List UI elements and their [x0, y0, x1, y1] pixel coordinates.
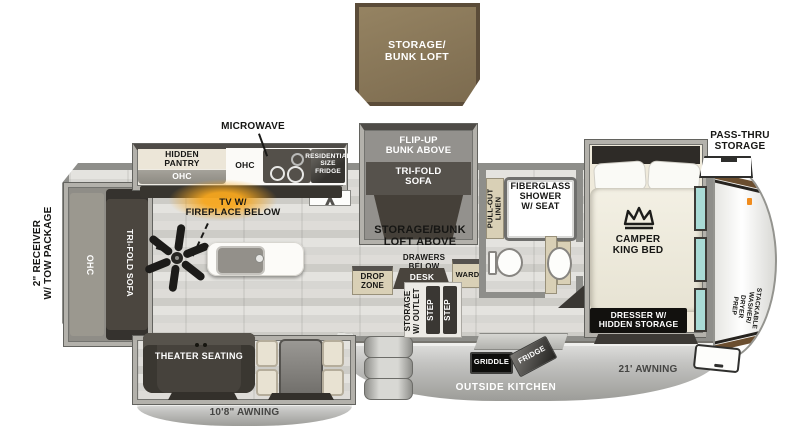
hidden-pantry-label: HIDDEN PANTRY [138, 150, 226, 169]
dinette-chair [322, 369, 344, 396]
kitchen-island [207, 242, 304, 276]
bath-wall-bottom [479, 292, 545, 298]
floorplan-canvas: STORAGE/ BUNK LOFT 2" RECEIVER W/ TOW PA… [0, 0, 800, 443]
step-1-label: STEP [427, 290, 439, 330]
storage-outlet-label: STORAGE W/ OUTLET [404, 282, 422, 340]
theater-seating-label: THEATER SEATING [143, 352, 255, 362]
cupholder-icon [195, 343, 199, 347]
pass-thru-hatch [699, 156, 753, 178]
wardrobe-door-window [694, 237, 707, 282]
wardrobe-door-window [694, 186, 707, 231]
pull-out-linen-label: PULL-OUT LINEN [487, 178, 504, 240]
tv-fireplace-label: TV W/ FIREPLACE BELOW [158, 198, 308, 219]
residential-fridge-label: RESIDENTIAL SIZE FRIDGE [305, 153, 351, 175]
bath-wall-right [576, 166, 583, 242]
dinette-chair [256, 340, 278, 367]
dresser-label: DRESSER W/ HIDDEN STORAGE [590, 311, 687, 330]
ceiling-fan-icon [139, 220, 215, 296]
cap-marker-light [747, 198, 752, 205]
cupholder-icon [203, 343, 207, 347]
bath-sink [547, 247, 572, 280]
step-2-label: STEP [444, 290, 456, 330]
burner-icon [287, 166, 304, 183]
theater-mat [168, 392, 238, 400]
bath-wall-left [479, 166, 486, 298]
hatch-handle [721, 158, 737, 162]
tri-fold-sofa-left-label: TRI-FOLD SOFA [120, 198, 134, 328]
desk-label: DESK [393, 273, 451, 282]
faucet-icon [255, 254, 264, 263]
awning-10-label: 10'8" AWNING [172, 407, 317, 418]
cooktop [263, 149, 311, 183]
front-cap [713, 160, 777, 362]
dinette-chair [256, 369, 278, 396]
outside-kitchen-label: OUTSIDE KITCHEN [426, 382, 586, 393]
entry-steps [364, 336, 411, 402]
washer-dryer-label: STACKABLE WASHER/ DRYER PREP [727, 282, 762, 331]
storage-bunk-loft-label: STORAGE/ BUNK LOFT [357, 40, 477, 63]
dinette-table [279, 339, 323, 399]
flip-up-bunk-label: FLIP-UP BUNK ABOVE [363, 136, 474, 157]
drop-zone-label: DROP ZONE [352, 273, 393, 291]
crown-icon [621, 204, 657, 232]
bunk-tri-fold-label: TRI-FOLD SOFA [366, 167, 471, 188]
dinette-chair [322, 340, 344, 367]
wardrobe-door-window [694, 288, 707, 332]
microwave-label: MICROWAVE [203, 121, 303, 132]
sofa-ohc-label: OHC [80, 215, 94, 315]
awning-21-label: 21' AWNING [598, 364, 698, 375]
theater-seats [143, 333, 255, 393]
griddle-label: GRIDDLE [470, 358, 513, 366]
dinette-mat [268, 393, 334, 400]
receiver-label: 2" RECEIVER W/ TOW PACKAGE [32, 178, 58, 328]
camper-king-bed-label: CAMPER KING BED [588, 234, 688, 256]
headboard [592, 146, 700, 164]
entry-door [693, 344, 741, 374]
burner-icon [291, 153, 304, 166]
loft-above-label: STORAGE/BUNK LOFT ABOVE [352, 224, 488, 248]
dresser-slab [594, 334, 698, 344]
door-handle [714, 364, 723, 368]
counter-ohc-label: OHC [226, 161, 264, 170]
toilet-bowl [496, 248, 523, 277]
shower-label: FIBERGLASS SHOWER W/ SEAT [504, 182, 577, 212]
pass-thru-label: PASS-THRU STORAGE [698, 130, 782, 152]
